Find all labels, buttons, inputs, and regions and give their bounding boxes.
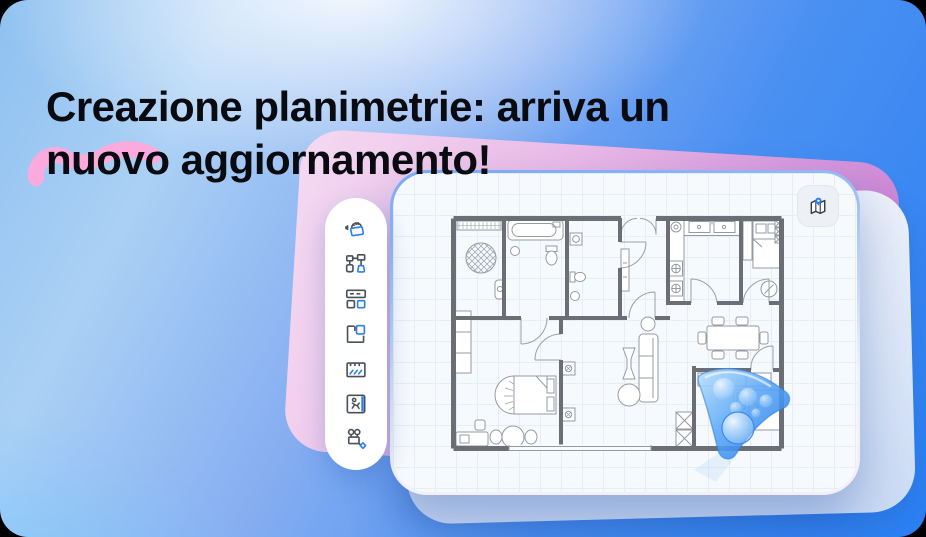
title-line-2: nuovo aggiornamento! [46, 133, 876, 186]
equipment-tool-button[interactable] [342, 425, 370, 453]
wardrobe [743, 221, 752, 260]
side-table [623, 348, 635, 379]
flowchart-tool-button[interactable] [342, 250, 370, 278]
page-title: Creazione planimetrie: arriva un nuovo a… [46, 80, 876, 186]
bathtub [508, 220, 563, 240]
kitchen-counter [668, 219, 684, 303]
flooring-hatch-tool-button[interactable] [342, 355, 370, 383]
layout-blocks-icon [343, 286, 369, 312]
layout-blocks-tool-button[interactable] [342, 285, 370, 313]
exit-route-tool-button[interactable] [342, 390, 370, 418]
nightstand-2 [562, 408, 575, 421]
shelf-unit [454, 311, 471, 373]
kitchen-sink [684, 219, 741, 236]
flooring-hatch-icon [343, 356, 369, 382]
equipment-valves-icon [343, 426, 369, 452]
dresser [621, 249, 629, 291]
nightstand [562, 362, 575, 375]
dimension-marks [457, 221, 501, 230]
window [509, 445, 651, 452]
sink-unit [570, 233, 582, 245]
toilet-2 [570, 272, 586, 282]
toilet [546, 246, 557, 265]
ottoman [641, 317, 655, 331]
floor-plan-room-icon [343, 321, 369, 347]
title-line-1: Creazione planimetrie: arriva un [46, 80, 876, 133]
sofa [639, 334, 658, 402]
glass-cursor [686, 356, 798, 488]
room-scan-icon [343, 216, 369, 242]
floor-plan-tool-button[interactable] [342, 320, 370, 348]
room-scan-tool-button[interactable] [342, 215, 370, 243]
bed-bottom-left [495, 376, 556, 414]
armchair [618, 384, 640, 406]
exit-route-icon [343, 391, 369, 417]
flowchart-shapes-icon [343, 251, 369, 277]
basin [511, 247, 520, 256]
map-location-icon [807, 195, 830, 218]
map-button[interactable] [797, 185, 839, 227]
promo-banner: Creazione planimetrie: arriva un nuovo a… [0, 0, 926, 537]
canvas-card-border [390, 170, 860, 495]
stool [571, 292, 580, 301]
desk [456, 420, 488, 446]
tools-sidebar [325, 198, 387, 470]
floor-plan-canvas[interactable] [393, 173, 857, 492]
round-rug [466, 243, 496, 273]
